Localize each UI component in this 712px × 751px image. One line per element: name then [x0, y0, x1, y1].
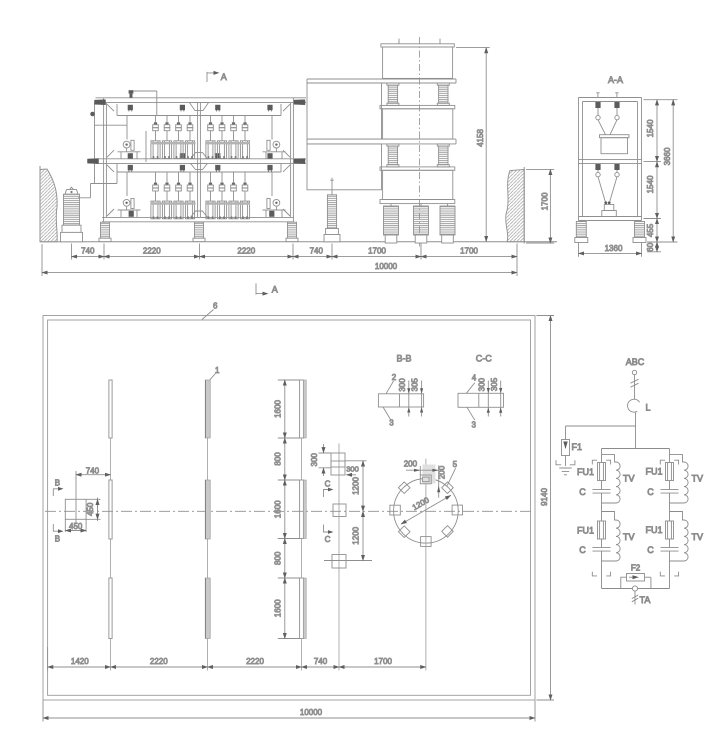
svg-text:450: 450	[69, 522, 83, 531]
svg-text:A-A: A-A	[608, 75, 623, 85]
svg-text:F1: F1	[572, 442, 583, 452]
svg-text:3: 3	[471, 421, 476, 430]
svg-text:TV: TV	[692, 532, 704, 542]
svg-text:ABC: ABC	[626, 357, 645, 367]
svg-text:1200: 1200	[352, 526, 361, 544]
svg-text:C: C	[325, 480, 331, 489]
svg-text:C: C	[579, 487, 586, 497]
svg-text:TV: TV	[692, 473, 704, 483]
svg-text:10000: 10000	[300, 708, 323, 717]
svg-text:1700: 1700	[460, 247, 478, 256]
svg-text:FU1: FU1	[577, 467, 594, 477]
svg-text:300: 300	[478, 377, 487, 391]
svg-text:1360: 1360	[605, 244, 623, 253]
svg-text:2220: 2220	[237, 247, 255, 256]
svg-text:4158: 4158	[476, 129, 485, 147]
svg-text:C: C	[647, 487, 654, 497]
svg-text:740: 740	[86, 467, 100, 476]
svg-text:740: 740	[314, 657, 328, 666]
svg-text:2220: 2220	[143, 247, 161, 256]
svg-text:800: 800	[273, 551, 282, 565]
svg-text:FU1: FU1	[577, 525, 594, 535]
svg-text:1700: 1700	[540, 192, 549, 210]
svg-text:A: A	[221, 72, 227, 82]
svg-text:60: 60	[646, 242, 655, 251]
svg-text:1200: 1200	[352, 477, 361, 495]
svg-text:1700: 1700	[374, 657, 392, 666]
svg-text:300: 300	[346, 464, 359, 473]
svg-text:B-B: B-B	[396, 354, 411, 364]
svg-text:C: C	[325, 535, 331, 544]
svg-text:TA: TA	[640, 595, 651, 605]
svg-text:3: 3	[389, 418, 394, 427]
svg-text:1540: 1540	[646, 119, 655, 137]
svg-text:200: 200	[438, 465, 447, 479]
svg-text:B: B	[55, 478, 60, 487]
svg-text:455: 455	[646, 223, 655, 237]
svg-text:450: 450	[86, 502, 95, 516]
svg-text:1700: 1700	[368, 247, 386, 256]
svg-text:9140: 9140	[540, 488, 549, 506]
svg-text:1540: 1540	[646, 175, 655, 193]
svg-text:TV: TV	[623, 532, 635, 542]
svg-text:2220: 2220	[246, 657, 264, 666]
svg-text:300: 300	[310, 453, 319, 467]
svg-text:F2: F2	[631, 563, 641, 572]
svg-text:2: 2	[392, 373, 397, 382]
svg-text:1600: 1600	[273, 500, 282, 518]
svg-text:5: 5	[453, 460, 458, 469]
svg-text:740: 740	[81, 247, 95, 256]
svg-text:800: 800	[273, 452, 282, 466]
svg-text:305: 305	[490, 377, 499, 391]
svg-text:1600: 1600	[273, 400, 282, 418]
svg-text:6: 6	[213, 302, 218, 311]
svg-text:TV: TV	[623, 473, 635, 483]
svg-text:L: L	[646, 402, 651, 412]
svg-text:FU1: FU1	[645, 466, 662, 476]
svg-text:1600: 1600	[273, 599, 282, 617]
svg-text:C-C: C-C	[476, 354, 492, 364]
svg-text:10000: 10000	[375, 262, 398, 271]
svg-text:300: 300	[398, 378, 407, 392]
svg-text:A: A	[272, 285, 278, 295]
svg-text:305: 305	[411, 378, 420, 392]
svg-text:200: 200	[404, 460, 418, 469]
svg-text:B: B	[55, 535, 60, 544]
svg-text:C: C	[579, 545, 586, 555]
svg-text:FU1: FU1	[645, 525, 662, 535]
svg-text:2220: 2220	[150, 657, 168, 666]
svg-text:1420: 1420	[71, 657, 89, 666]
svg-text:4: 4	[472, 374, 477, 383]
svg-text:3660: 3660	[663, 147, 672, 165]
svg-text:1: 1	[215, 366, 220, 375]
svg-text:C: C	[647, 545, 654, 555]
svg-text:740: 740	[310, 247, 324, 256]
